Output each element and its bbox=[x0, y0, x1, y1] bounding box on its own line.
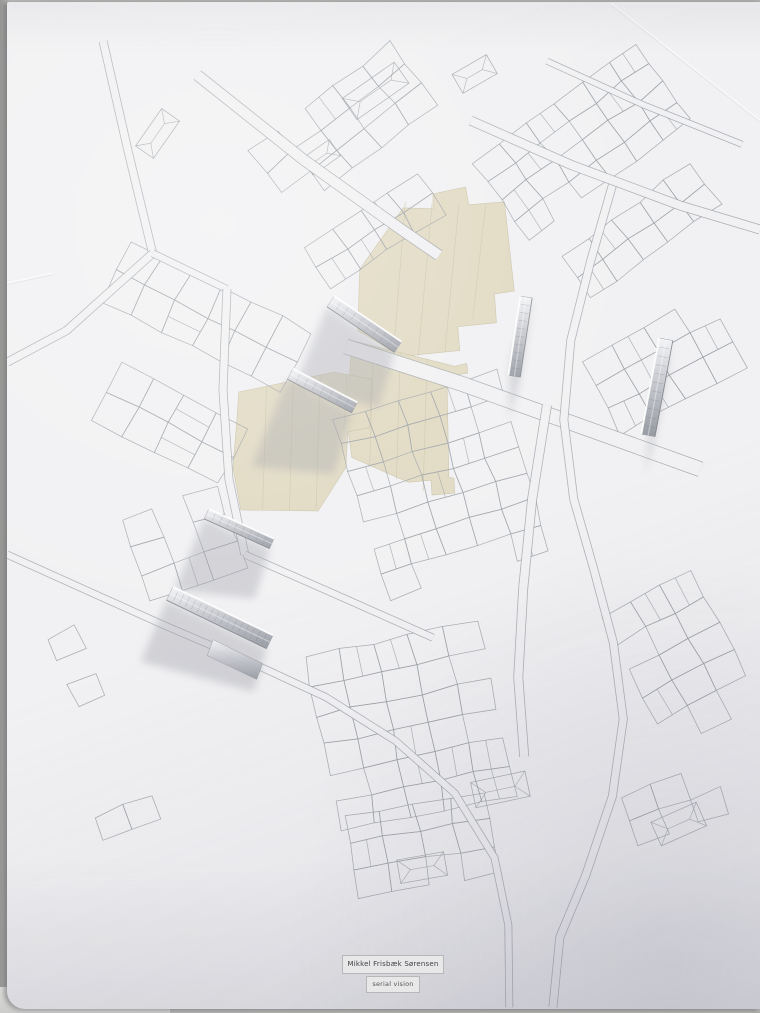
drawing-sheet: Mikkel Frisbæk Sørensen serial vision bbox=[7, 2, 760, 1009]
photo-frame: Mikkel Frisbæk Sørensen serial vision bbox=[0, 0, 760, 1013]
subtitle-label-plate: serial vision bbox=[366, 976, 420, 993]
metal-marker bbox=[141, 587, 273, 692]
author-name: Mikkel Frisbæk Sørensen bbox=[347, 961, 438, 968]
metal-marker bbox=[174, 509, 274, 599]
street-network bbox=[7, 41, 760, 1007]
city-map-drawing bbox=[7, 2, 760, 1009]
project-subtitle: serial vision bbox=[372, 981, 413, 988]
author-label-plate: Mikkel Frisbæk Sørensen bbox=[342, 955, 444, 974]
